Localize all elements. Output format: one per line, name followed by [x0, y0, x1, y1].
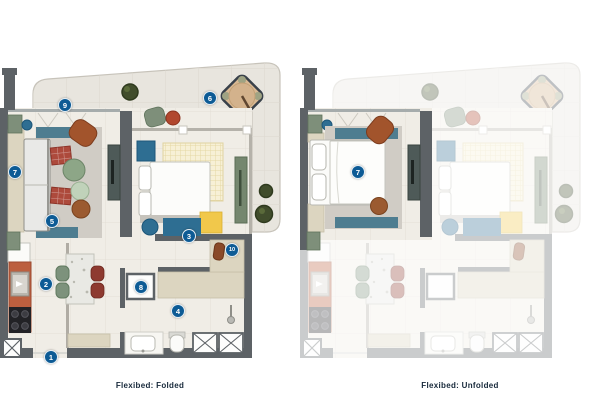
plan-marker-3: 3	[182, 229, 196, 243]
plan-marker-7: 7	[8, 165, 22, 179]
flexibed-open-bed	[310, 140, 385, 205]
plan-marker-4: 4	[171, 304, 185, 318]
plan-marker-5: 5	[45, 214, 59, 228]
floorplan-folded-drawing	[0, 0, 300, 372]
pouf	[371, 198, 388, 215]
plan-marker-1: 1	[44, 350, 58, 364]
floorplan-figure: 12345678910	[0, 0, 600, 400]
caption-unfolded: Flexibed: Unfolded	[310, 381, 600, 390]
plan-marker-9: 9	[58, 98, 72, 112]
floorplan-folded: 12345678910	[0, 0, 300, 372]
floorplan-unfolded-drawing	[300, 0, 600, 372]
plan-marker-10: 10	[225, 243, 239, 257]
plan-marker-7: 7	[351, 165, 365, 179]
tv-unit	[408, 145, 420, 200]
plan-marker-6: 6	[203, 91, 217, 105]
plan-marker-8: 8	[134, 280, 148, 294]
caption-folded: Flexibed: Folded	[0, 381, 300, 390]
plan-marker-2: 2	[39, 277, 53, 291]
floorplan-unfolded: 7	[300, 0, 600, 372]
